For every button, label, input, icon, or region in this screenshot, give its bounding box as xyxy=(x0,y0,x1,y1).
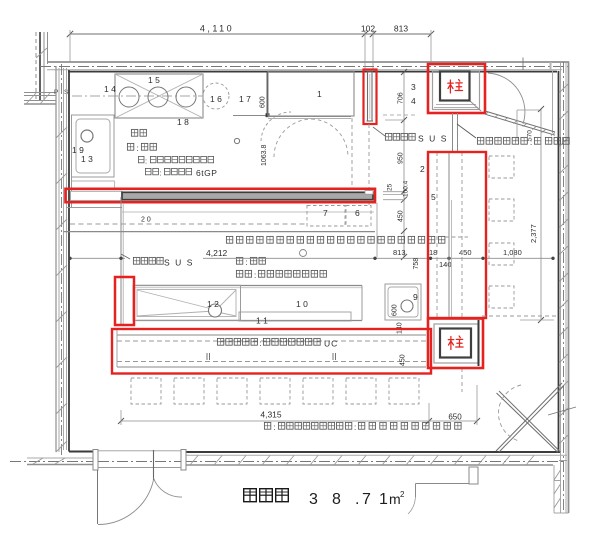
svg-text:.: . xyxy=(355,491,359,508)
svg-text:100.4: 100.4 xyxy=(403,180,410,197)
svg-text:8: 8 xyxy=(332,491,341,508)
svg-text:1 0: 1 0 xyxy=(296,299,308,309)
svg-text:450: 450 xyxy=(400,354,407,366)
svg-text:813: 813 xyxy=(393,248,406,257)
svg-text:1 4: 1 4 xyxy=(104,84,116,94)
svg-text:18: 18 xyxy=(429,248,437,257)
svg-text::: : xyxy=(145,157,147,166)
svg-text:5: 5 xyxy=(431,192,436,202)
svg-text:950: 950 xyxy=(398,152,405,164)
svg-text::: : xyxy=(530,138,532,147)
svg-text:4,315: 4,315 xyxy=(260,410,282,420)
svg-text:450: 450 xyxy=(459,248,472,257)
svg-text::: : xyxy=(246,258,248,267)
svg-text:2 0: 2 0 xyxy=(141,217,151,224)
svg-text:9: 9 xyxy=(413,292,418,302)
svg-text::: : xyxy=(260,339,262,348)
svg-text:1: 1 xyxy=(379,491,388,508)
svg-text::: : xyxy=(274,423,276,432)
svg-text:UC: UC xyxy=(324,339,338,349)
svg-text::: : xyxy=(254,271,256,280)
svg-text:1 2: 1 2 xyxy=(207,299,219,309)
svg-text::: : xyxy=(137,144,139,153)
svg-text:650: 650 xyxy=(448,413,462,422)
svg-text::: : xyxy=(160,169,162,178)
svg-text:2: 2 xyxy=(400,490,405,499)
svg-text:600: 600 xyxy=(392,304,399,316)
svg-text:758: 758 xyxy=(413,258,420,270)
svg-text:1063.8: 1063.8 xyxy=(261,144,268,166)
svg-text:7: 7 xyxy=(323,208,328,218)
svg-text:1,080: 1,080 xyxy=(503,248,522,257)
svg-text:SUS: SUS xyxy=(164,258,198,268)
svg-text:706: 706 xyxy=(398,92,405,104)
svg-text:1 1: 1 1 xyxy=(256,316,268,326)
svg-text:140: 140 xyxy=(439,260,452,269)
svg-text:1 5: 1 5 xyxy=(148,75,160,85)
svg-text::: : xyxy=(354,423,356,432)
svg-text:600: 600 xyxy=(260,96,267,108)
svg-text:3: 3 xyxy=(411,82,416,92)
svg-text:102: 102 xyxy=(361,24,375,34)
svg-text:3: 3 xyxy=(309,491,318,508)
svg-text:4,110: 4,110 xyxy=(200,24,234,34)
svg-text:4: 4 xyxy=(411,96,416,106)
svg-text:4,212: 4,212 xyxy=(206,248,228,258)
svg-text:2: 2 xyxy=(420,164,425,174)
svg-text:SUS: SUS xyxy=(418,134,452,144)
svg-text:1: 1 xyxy=(317,89,322,99)
svg-text:6: 6 xyxy=(355,208,360,218)
svg-text:450: 450 xyxy=(398,210,405,222)
svg-text:2,377: 2,377 xyxy=(529,224,538,243)
svg-text:1 3: 1 3 xyxy=(81,154,93,164)
svg-text:813: 813 xyxy=(394,24,408,34)
svg-text:m: m xyxy=(389,491,401,507)
svg-text:25: 25 xyxy=(387,183,394,191)
svg-text:1 7: 1 7 xyxy=(239,94,251,104)
svg-text:6tGP: 6tGP xyxy=(196,168,217,178)
svg-text:1 6: 1 6 xyxy=(210,94,222,104)
svg-text:1 8: 1 8 xyxy=(177,117,189,127)
svg-text:7: 7 xyxy=(362,491,371,508)
